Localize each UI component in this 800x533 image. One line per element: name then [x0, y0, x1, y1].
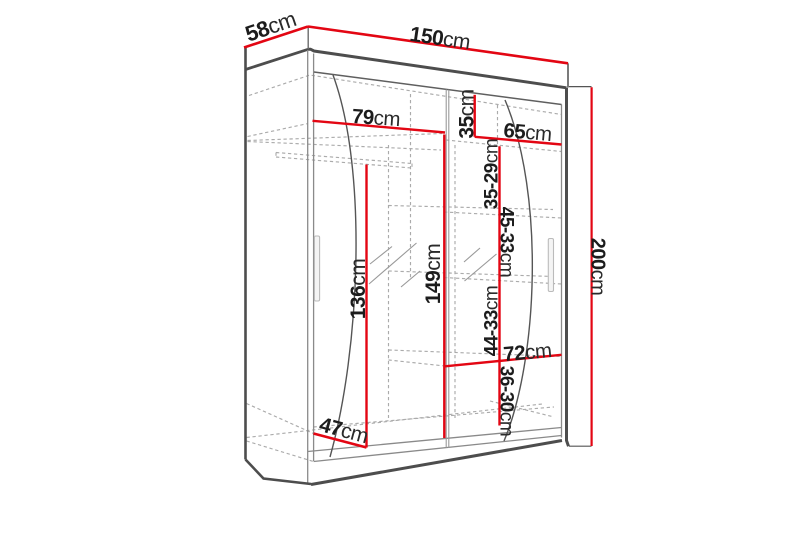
svg-text:58cm: 58cm [242, 6, 299, 46]
svg-text:65cm: 65cm [503, 119, 553, 146]
svg-text:44-33cm: 44-33cm [482, 286, 503, 356]
svg-text:149cm: 149cm [422, 244, 445, 305]
svg-text:35-29cm: 35-29cm [482, 139, 503, 209]
svg-text:72cm: 72cm [502, 339, 552, 366]
svg-text:79cm: 79cm [351, 105, 401, 131]
svg-text:150cm: 150cm [408, 23, 471, 54]
svg-text:45-33cm: 45-33cm [496, 207, 517, 277]
svg-text:136cm: 136cm [347, 259, 370, 320]
svg-text:47cm: 47cm [317, 413, 371, 448]
svg-text:35cm: 35cm [456, 89, 479, 138]
svg-text:200cm: 200cm [587, 238, 609, 296]
svg-text:36-30cm: 36-30cm [496, 366, 517, 436]
